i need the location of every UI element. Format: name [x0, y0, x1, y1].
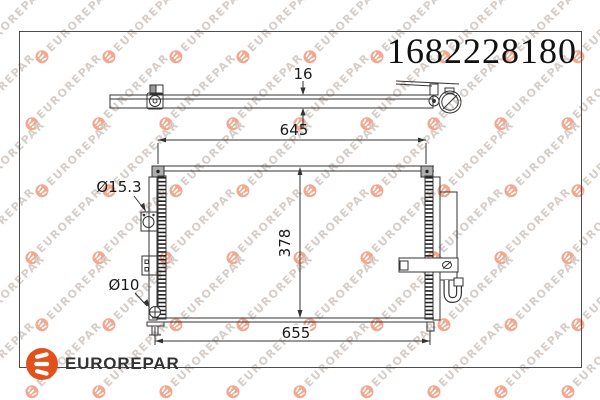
- left-side-plate: [149, 177, 157, 320]
- lower-port-label: Ø10: [109, 276, 140, 294]
- dimension-width-top: 645: [158, 121, 426, 164]
- brand-name: EUROREPAR: [65, 354, 180, 374]
- parts-diagram-page: EUROREPAR EUROREPAR EUROREPAR EUROREPAR …: [0, 0, 600, 400]
- top-view: 16: [110, 65, 461, 128]
- part-number: 1682228180: [387, 33, 577, 69]
- eurorepar-e-icon: [26, 348, 58, 380]
- dimension-thickness-label: 16: [293, 65, 312, 83]
- callout-lower-port: Ø10: [109, 276, 150, 308]
- front-view: 645: [96, 121, 463, 345]
- bottom-right-stem: [427, 322, 434, 331]
- eurorepar-e-icon: [26, 348, 58, 380]
- dimension-width-bottom: 655: [155, 324, 430, 345]
- dimension-height-label: 378: [276, 229, 294, 258]
- brand-logo: EUROREPAR: [26, 348, 180, 380]
- upper-port-label: Ø15.3: [96, 178, 141, 196]
- callout-upper-port: Ø15.3: [96, 178, 146, 212]
- dimension-thickness: 16: [293, 65, 312, 128]
- dimension-height: 378: [276, 167, 303, 318]
- dimension-width-bottom-label: 655: [282, 324, 311, 342]
- dimension-width-top-label: 645: [280, 121, 309, 139]
- right-side-plate: [433, 177, 440, 320]
